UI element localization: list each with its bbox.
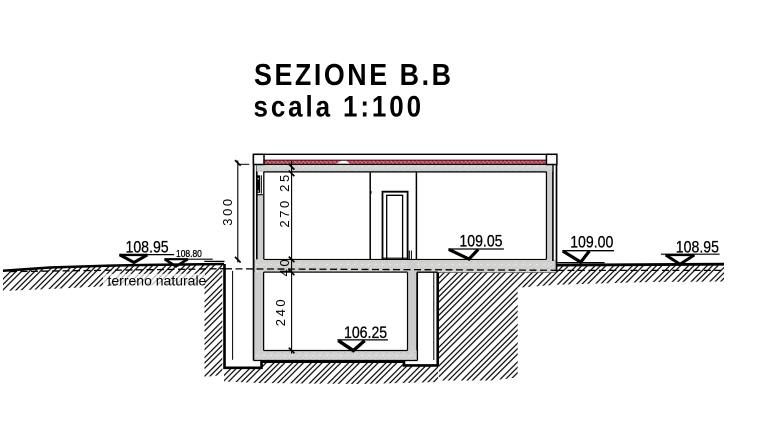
svg-text:108.80: 108.80	[176, 248, 202, 259]
svg-text:terreno naturale: terreno naturale	[108, 272, 207, 288]
svg-text:270: 270	[277, 198, 292, 228]
svg-text:109.00: 109.00	[570, 233, 613, 251]
svg-text:109.05: 109.05	[459, 232, 502, 250]
svg-text:25: 25	[277, 172, 292, 192]
svg-text:240: 240	[273, 297, 288, 327]
svg-text:300: 300	[220, 196, 235, 226]
svg-text:SEZIONE B.B: SEZIONE B.B	[254, 59, 454, 93]
svg-text:scala 1:100: scala 1:100	[254, 90, 424, 123]
svg-text:40: 40	[277, 257, 292, 277]
